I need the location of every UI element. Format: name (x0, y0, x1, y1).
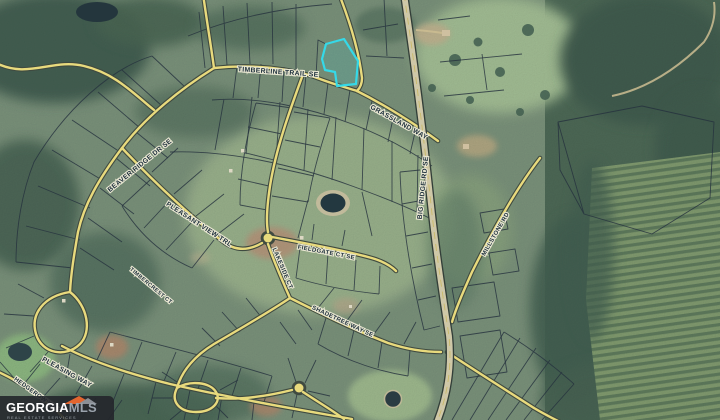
watermark-brand: GEORGIA (6, 400, 69, 415)
pond-icon (385, 391, 402, 408)
pond-icon (76, 2, 118, 22)
watermark-tagline: REAL ESTATE SERVICES (7, 415, 77, 420)
map-canvas[interactable]: TIMBERLINE TRAIL SE GRASSLAND WAY BIG RI… (0, 0, 720, 420)
pond-icon (321, 194, 346, 213)
svg-text:GEORGIAMLS: GEORGIAMLS (6, 400, 97, 415)
georgiamls-watermark: GEORGIAMLS REAL ESTATE SERVICES (0, 396, 114, 420)
watermark-brand-suffix: MLS (69, 400, 97, 415)
parcel-map-view[interactable]: TIMBERLINE TRAIL SE GRASSLAND WAY BIG RI… (0, 0, 720, 420)
pond-icon (8, 343, 32, 361)
